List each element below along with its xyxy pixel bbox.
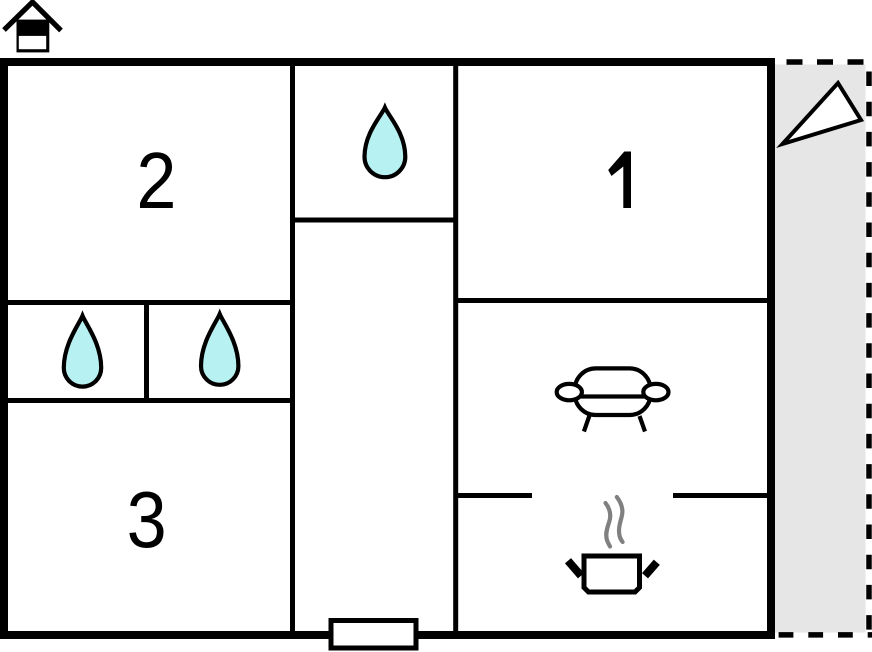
svg-text:2: 2: [136, 137, 176, 226]
svg-text:3: 3: [127, 476, 167, 565]
